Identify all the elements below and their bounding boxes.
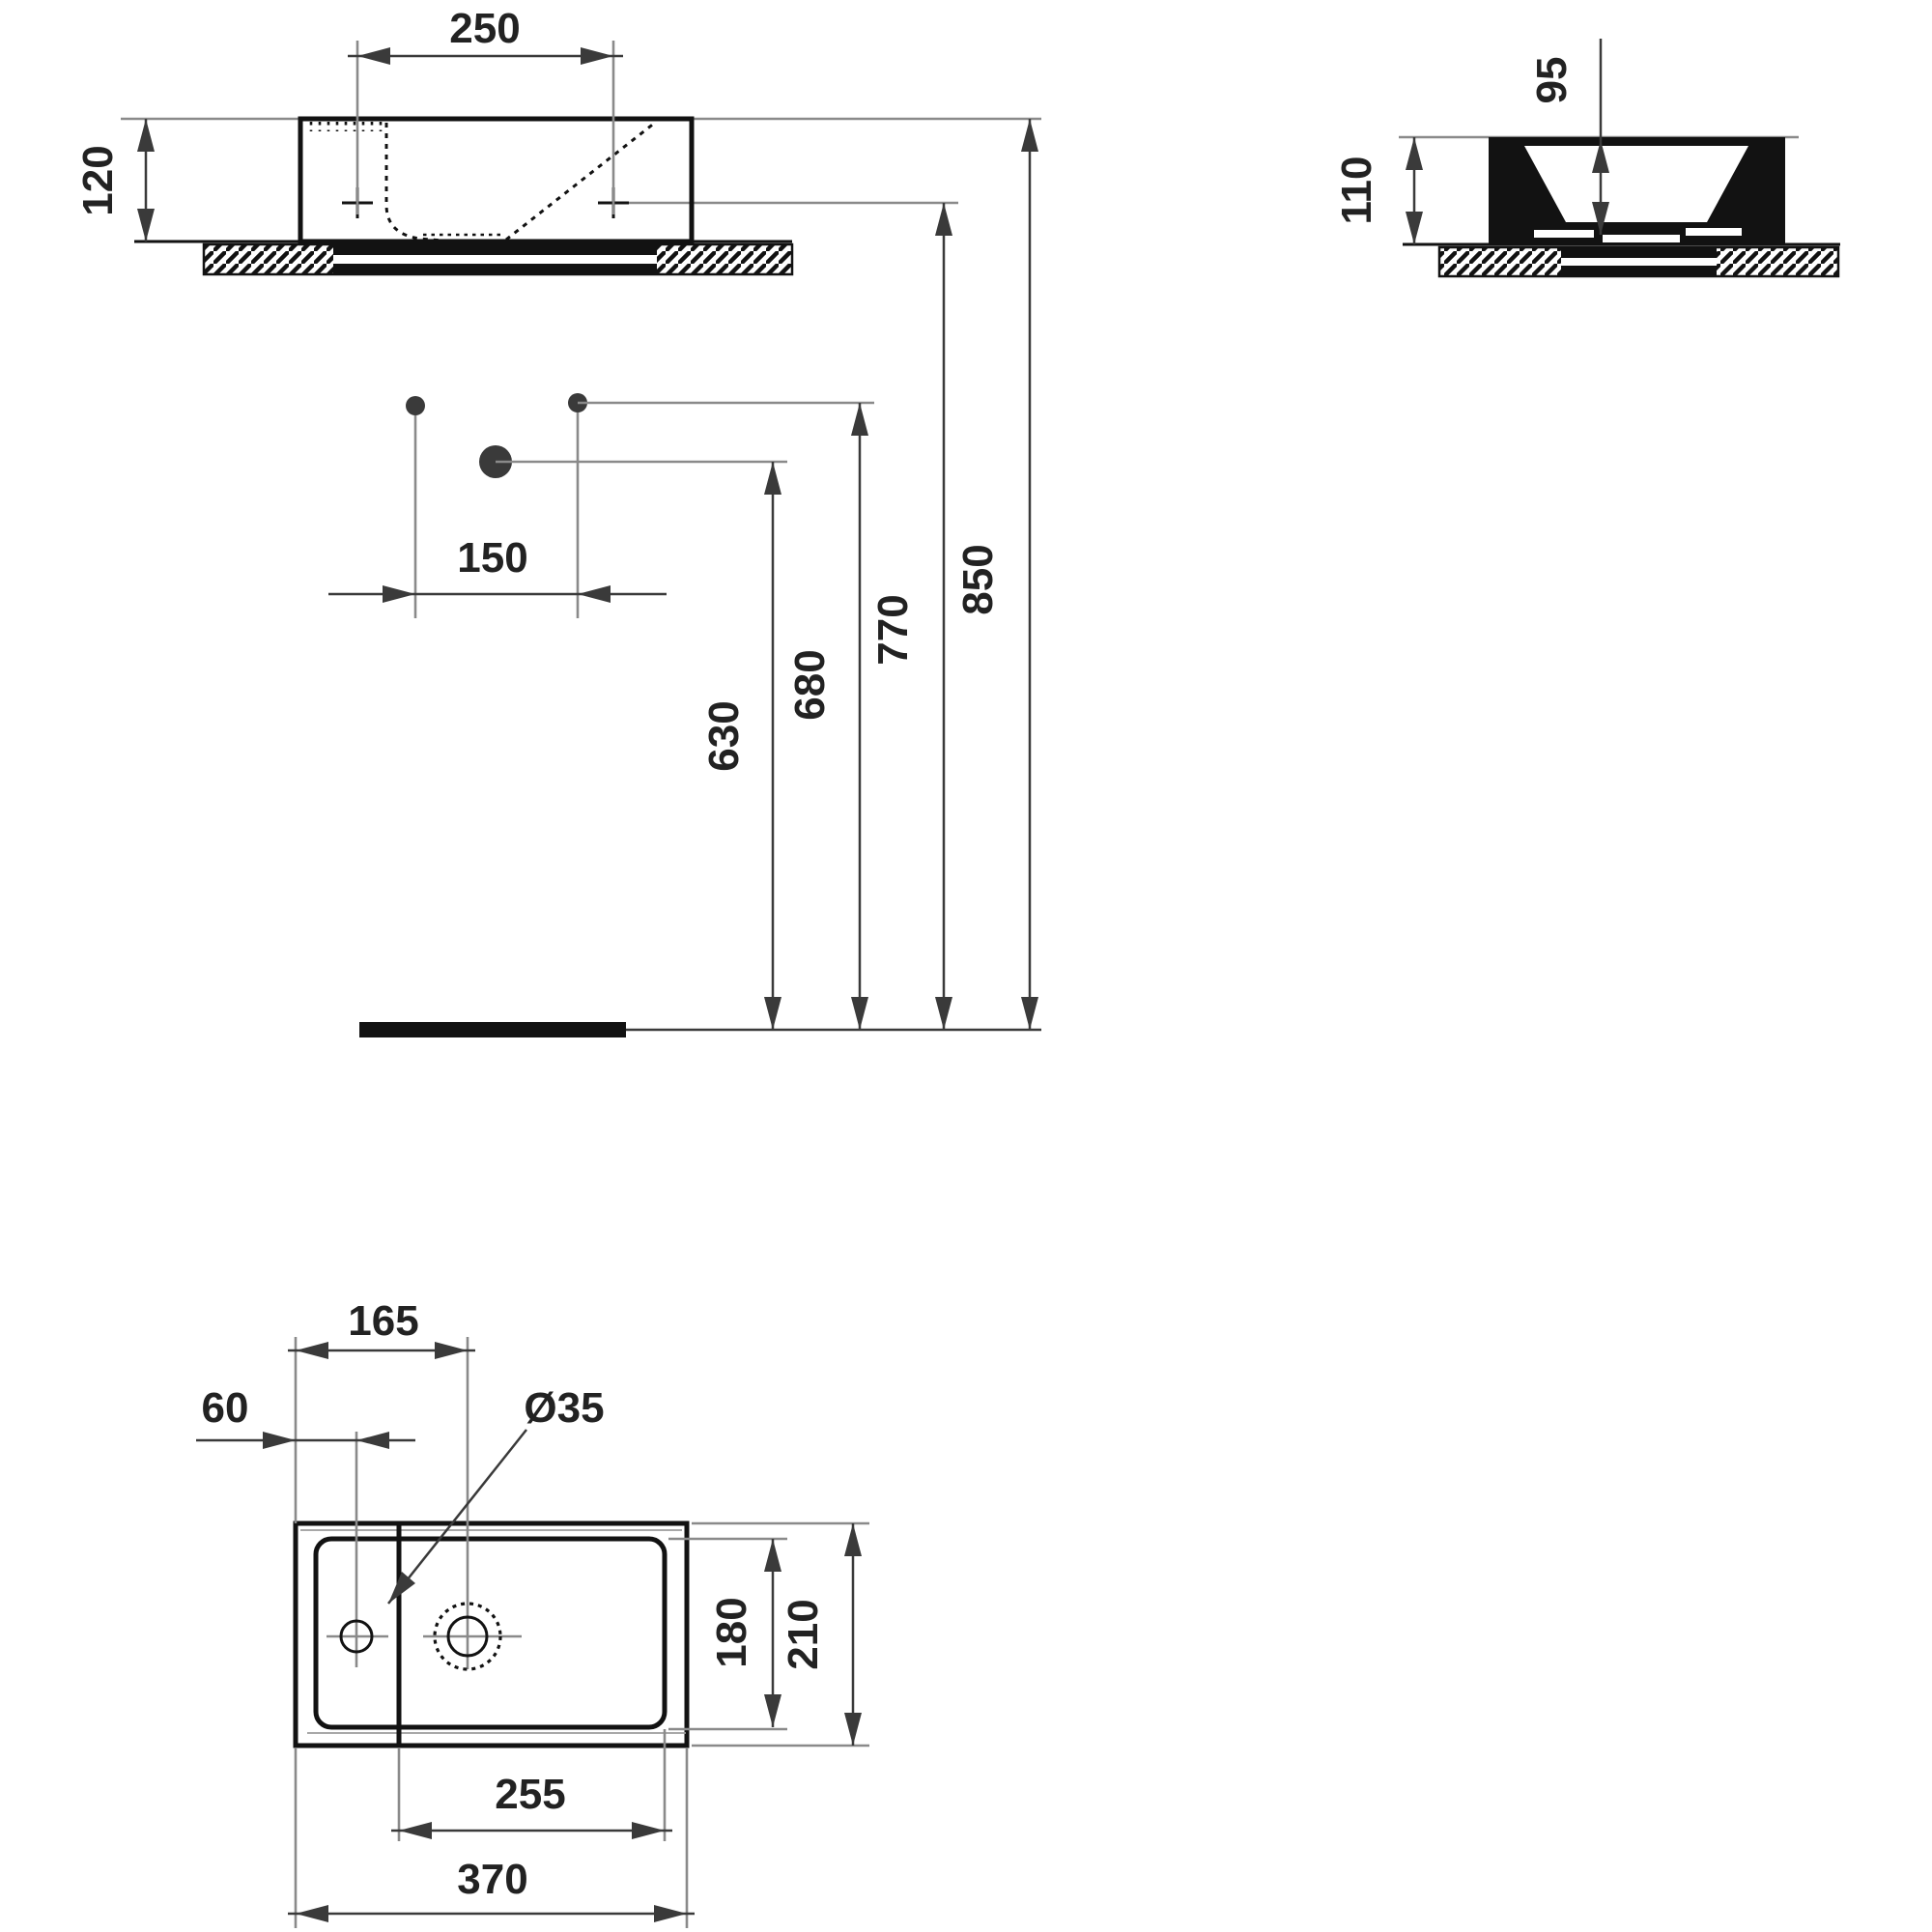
- front-view: 250 120: [74, 5, 1041, 274]
- floor-line: [359, 1022, 1041, 1037]
- basin-plan-outline: [296, 1523, 687, 1746]
- plan-view: 165 60 Ø35 180: [196, 1297, 869, 1928]
- dimension-dia35: Ø35: [388, 1384, 605, 1604]
- dim-60-label: 60: [202, 1384, 249, 1432]
- dim-770-label: 770: [869, 594, 917, 665]
- rim-hatch-ticks: [311, 122, 381, 131]
- dim-150-label: 150: [457, 534, 527, 582]
- fixing-points: 150: [328, 393, 874, 618]
- dimension-150: 150: [328, 534, 667, 603]
- dim-630-label: 630: [700, 700, 748, 771]
- dim-370-label: 370: [457, 1856, 527, 1903]
- side-wall-hatch-band: [1439, 247, 1838, 276]
- bowl-inner-rim: [316, 1539, 665, 1727]
- dim-680-label: 680: [786, 649, 834, 720]
- dim-110-label: 110: [1333, 156, 1380, 225]
- tap-hole: [423, 1337, 522, 1669]
- small-hole: [327, 1432, 388, 1667]
- dimension-110: 110: [1333, 137, 1423, 244]
- dim-250-label: 250: [449, 5, 520, 52]
- dim-180-label: 180: [708, 1597, 755, 1667]
- dimension-165: 165: [288, 1297, 475, 1523]
- dim-850-label: 850: [954, 544, 1002, 614]
- dim-95-label: 95: [1528, 57, 1576, 104]
- hidden-bowl-profile: [311, 122, 655, 243]
- dimension-120: 120: [74, 119, 155, 241]
- dimension-680: 680: [786, 403, 868, 1030]
- dim-dia35-label: Ø35: [524, 1384, 604, 1432]
- drawing-sheet: 250 120 150 630: [0, 0, 1932, 1932]
- fixing-hole-left: [406, 396, 425, 415]
- dim-255-label: 255: [495, 1771, 565, 1818]
- dimension-630: 630: [700, 462, 781, 1030]
- side-view: 110 95: [1333, 39, 1840, 276]
- dimension-250: 250: [348, 5, 623, 214]
- dimension-770: 770: [869, 203, 952, 1030]
- dimension-60: 60: [196, 1384, 415, 1449]
- basin-front-outline: [300, 119, 692, 241]
- wall-hatch-band: [204, 244, 792, 274]
- dimension-850: 850: [954, 119, 1038, 1030]
- dim-120-label: 120: [74, 145, 122, 215]
- technical-drawing: 250 120 150 630: [0, 0, 1932, 1932]
- dim-165-label: 165: [348, 1297, 418, 1345]
- dim-210-label: 210: [780, 1599, 827, 1669]
